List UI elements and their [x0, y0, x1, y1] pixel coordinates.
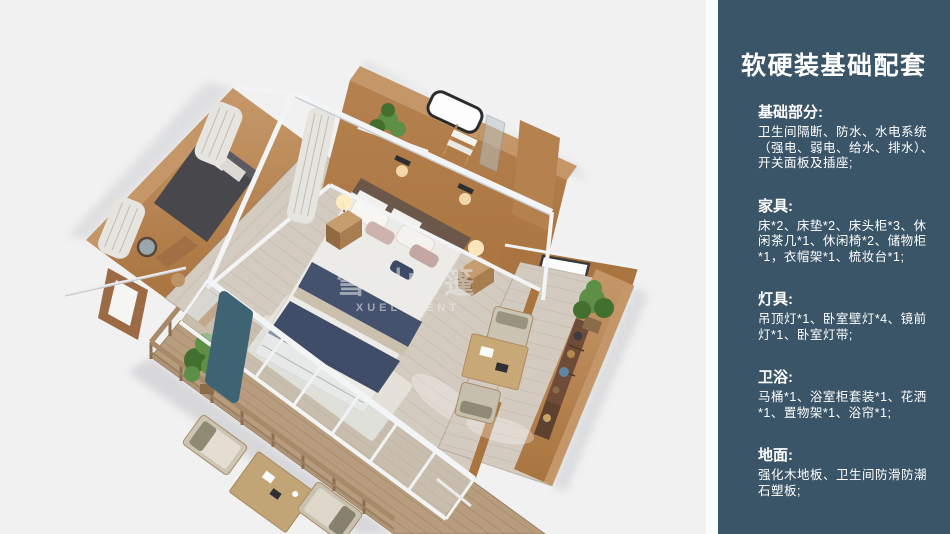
section-heading: 基础部分:: [758, 104, 936, 122]
watermark: 雪利帐篷 XUELI TENT: [336, 267, 480, 314]
slide: 雪利帐篷 XUELI TENT 软硬装基础配套 基础部分: 卫生间隔断、防水、水…: [0, 0, 950, 534]
section-lighting: 灯具: 吊顶灯*1、卧室壁灯*4、镜前灯*1、卧室灯带;: [758, 291, 936, 343]
section-heading: 卫浴:: [758, 369, 936, 387]
svg-text:雪利帐篷: 雪利帐篷: [336, 267, 480, 300]
section-body: 卫生间隔断、防水、水电系统（强电、弱电、给水、排水）、开关面板及插座;: [758, 125, 936, 172]
section-flooring: 地面: 强化木地板、卫生间防滑防潮石塑板;: [758, 447, 936, 499]
section-body: 吊顶灯*1、卧室壁灯*4、镜前灯*1、卧室灯带;: [758, 312, 936, 343]
section-body: 马桶*1、浴室柜套装*1、花洒*1、置物架*1、浴帘*1;: [758, 390, 936, 421]
svg-text:XUELI TENT: XUELI TENT: [356, 302, 460, 314]
section-heading: 家具:: [758, 198, 936, 216]
section-heading: 地面:: [758, 447, 936, 465]
panel-divider: [706, 0, 718, 534]
section-body: 强化木地板、卫生间防滑防潮石塑板;: [758, 468, 936, 499]
section-body: 床*2、床垫*2、床头柜*3、休闲茶几*1、休闲椅*2、储物柜*1，衣帽架*1、…: [758, 219, 936, 266]
section-basics: 基础部分: 卫生间隔断、防水、水电系统（强电、弱电、给水、排水）、开关面板及插座…: [758, 104, 936, 172]
section-heading: 灯具:: [758, 291, 936, 309]
section-furniture: 家具: 床*2、床垫*2、床头柜*3、休闲茶几*1、休闲椅*2、储物柜*1，衣帽…: [758, 198, 936, 266]
panel-title: 软硬装基础配套: [741, 50, 936, 82]
spec-sections: 基础部分: 卫生间隔断、防水、水电系统（强电、弱电、给水、排水）、开关面板及插座…: [758, 104, 936, 499]
section-bathroom: 卫浴: 马桶*1、浴室柜套装*1、花洒*1、置物架*1、浴帘*1;: [758, 369, 936, 421]
spec-panel: 软硬装基础配套 基础部分: 卫生间隔断、防水、水电系统（强电、弱电、给水、排水）…: [718, 0, 950, 534]
floorplan-render: 雪利帐篷 XUELI TENT: [0, 0, 718, 534]
